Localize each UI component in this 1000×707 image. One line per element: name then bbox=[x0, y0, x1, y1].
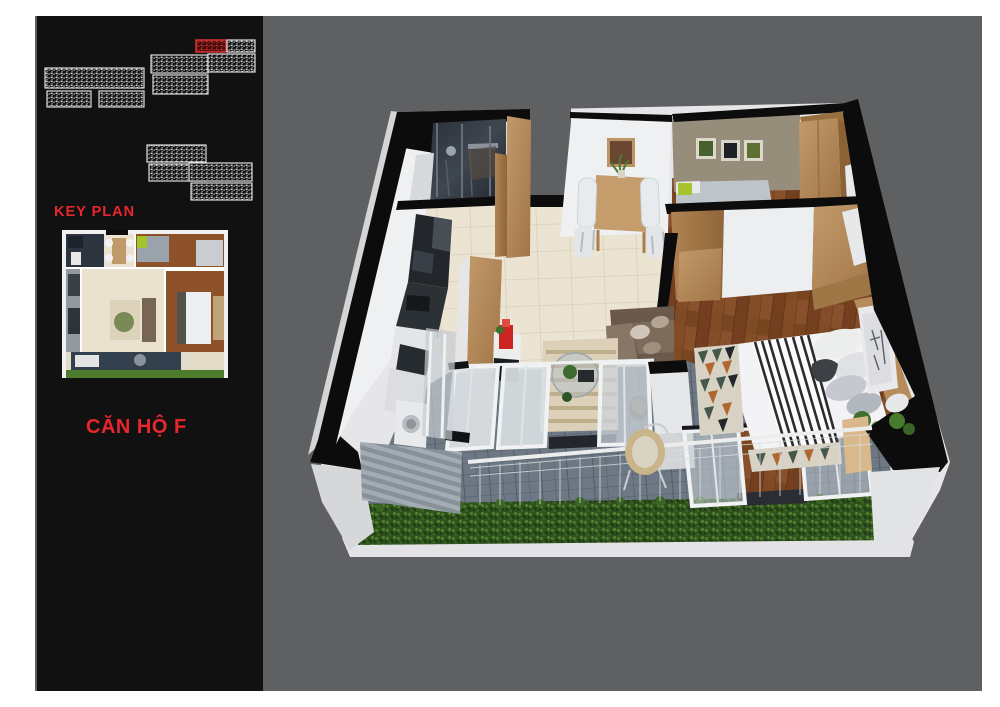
svg-text:CĂN HỘ F: CĂN HỘ F bbox=[86, 414, 187, 438]
svg-text:KEY PLAN: KEY PLAN bbox=[54, 204, 135, 220]
